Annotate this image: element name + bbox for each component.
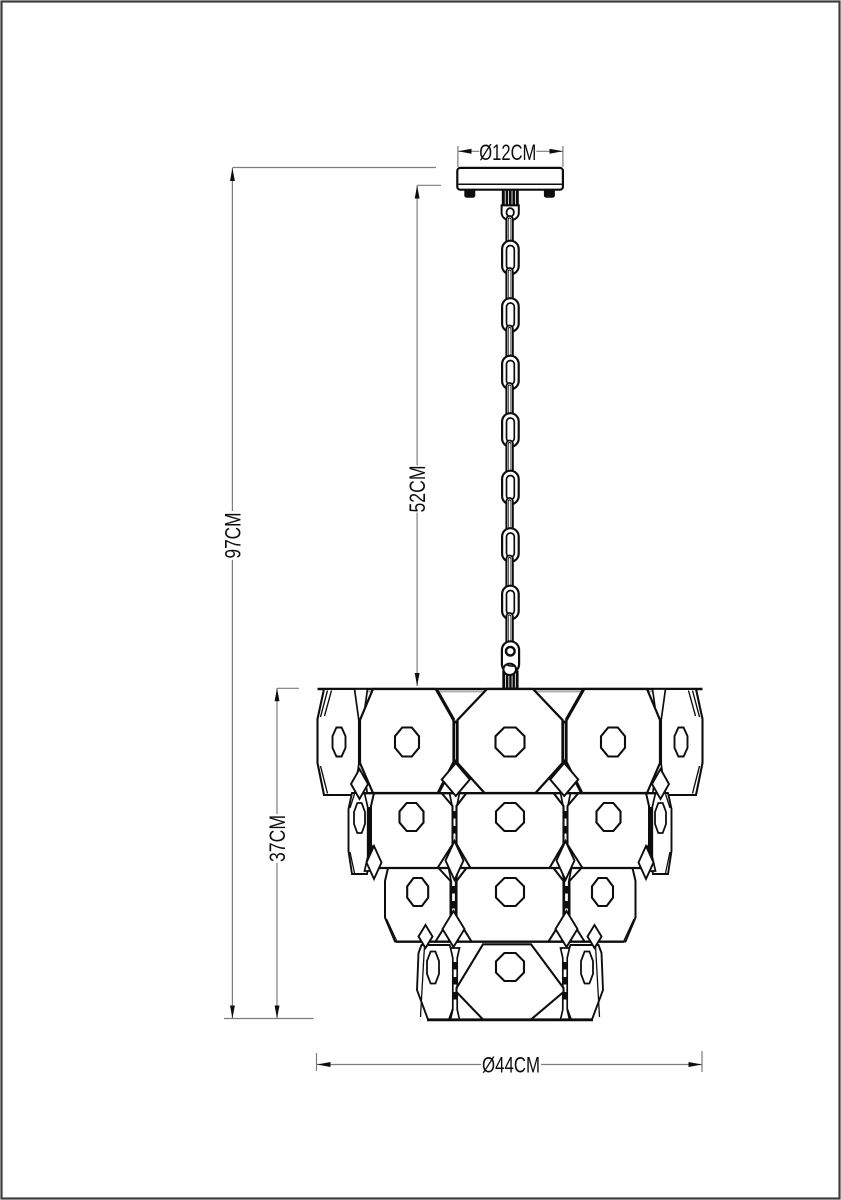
svg-text:Ø12CM: Ø12CM [479,140,536,165]
svg-text:37CM: 37CM [265,815,290,862]
svg-text:Ø44CM: Ø44CM [482,1053,540,1078]
svg-text:52CM: 52CM [405,466,430,513]
svg-text:97CM: 97CM [220,513,245,559]
